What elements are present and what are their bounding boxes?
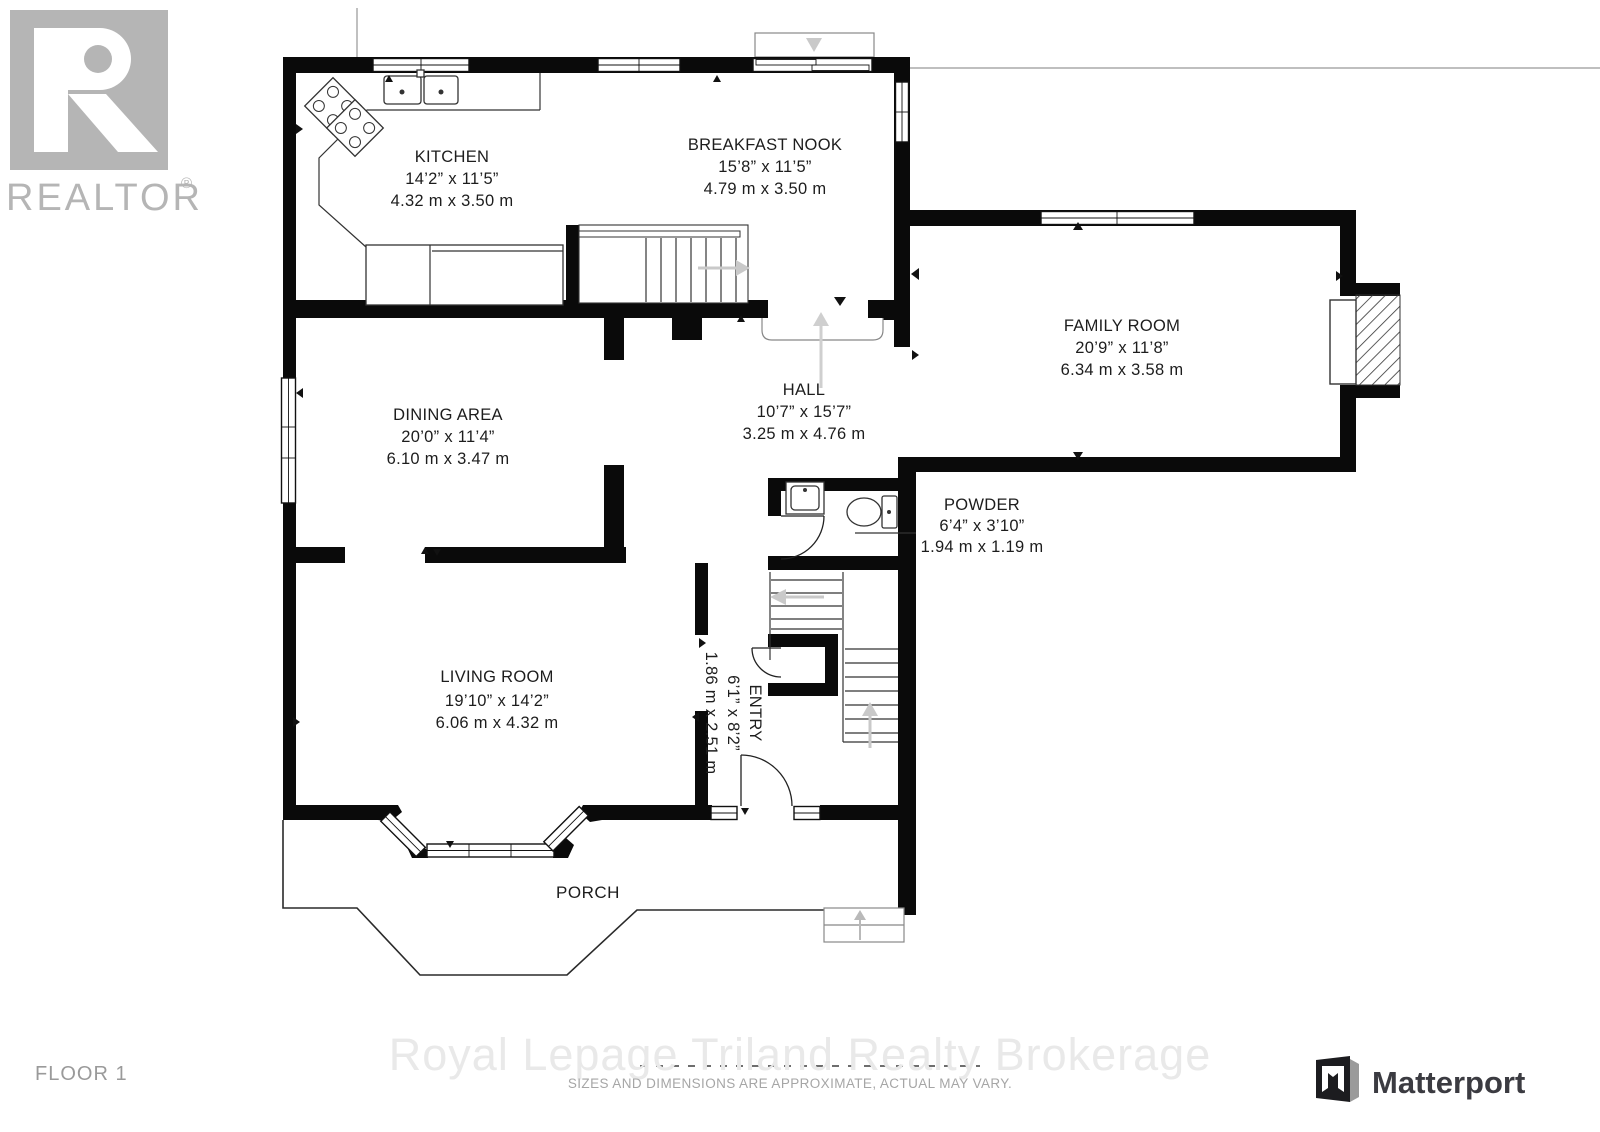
front-door: [741, 755, 792, 806]
nook-top-window: [598, 59, 680, 72]
floorplan-drawing: KITCHEN 14’2” x 11’5” 4.32 m x 3.50 m BR…: [0, 0, 1600, 1132]
room-name: FAMILY ROOM: [1064, 317, 1180, 335]
room-name: POWDER: [944, 496, 1020, 514]
room-label-breakfast-nook: BREAKFAST NOOK 15’8” x 11’5” 4.79 m x 3.…: [688, 136, 842, 198]
room-label-living-room: LIVING ROOM 19’10” x 14’2” 6.06 m x 4.32…: [436, 668, 559, 732]
room-name: BREAKFAST NOOK: [688, 136, 842, 154]
room-metric: 4.32 m x 3.50 m: [391, 192, 514, 210]
disclaimer-text: SIZES AND DIMENSIONS ARE APPROXIMATE, AC…: [568, 1076, 1012, 1091]
patio-landing: [755, 33, 874, 57]
room-metric: 6.06 m x 4.32 m: [436, 714, 559, 732]
floor-label: FLOOR 1: [35, 1063, 128, 1085]
room-label-porch: PORCH: [556, 883, 620, 902]
room-metric: 6.10 m x 3.47 m: [387, 450, 510, 468]
family-room-window: [1041, 212, 1194, 225]
firebox: [1330, 300, 1356, 384]
room-name: LIVING ROOM: [440, 668, 553, 686]
room-imperial: 10’7” x 15’7”: [757, 403, 852, 421]
stair-main: [843, 572, 898, 748]
room-metric: 3.25 m x 4.76 m: [743, 425, 866, 443]
patio-sliding-door: [753, 59, 872, 72]
room-metric: 6.34 m x 3.58 m: [1061, 361, 1184, 379]
room-label-entry: ENTRY 6’1” x 8’2” 1.86 m x 2.51 m: [702, 652, 764, 775]
kitchen-sink: [384, 70, 458, 104]
cooktop: [305, 78, 384, 157]
room-imperial: 14’2” x 11’5”: [405, 170, 498, 188]
stair-up-arrow-icon: [862, 702, 878, 716]
closet-door: [752, 648, 781, 677]
room-label-powder: POWDER 6’4” x 3’10” 1.94 m x 1.19 m: [921, 496, 1044, 556]
room-metric: 1.94 m x 1.19 m: [921, 538, 1044, 556]
matterport-mark-icon: [1316, 1056, 1359, 1102]
registered-mark: ®: [181, 175, 192, 192]
room-imperial: 15’8” x 11’5”: [718, 158, 811, 176]
room-imperial: 6’4” x 3’10”: [939, 517, 1024, 535]
room-metric: 4.79 m x 3.50 m: [704, 180, 827, 198]
room-imperial: 6’1” x 8’2”: [724, 675, 742, 751]
room-metric: 1.86 m x 2.51 m: [702, 652, 720, 775]
realtor-wordmark: REALTOR: [6, 177, 203, 219]
matterport-wordmark: Matterport: [1372, 1065, 1525, 1100]
powder-door: [781, 516, 824, 559]
floorplan-page: KITCHEN 14’2” x 11’5” 4.32 m x 3.50 m BR…: [0, 0, 1600, 1132]
room-label-hall: HALL 10’7” x 15’7” 3.25 m x 4.76 m: [743, 381, 866, 443]
watermark: Royal Lepage Triland Realty Brokerage SI…: [389, 1029, 1211, 1091]
fireplace: [1330, 295, 1400, 385]
room-name: KITCHEN: [415, 148, 490, 166]
brokerage-watermark: Royal Lepage Triland Realty Brokerage: [389, 1029, 1211, 1080]
room-imperial: 20’9” x 11’8”: [1075, 339, 1168, 357]
room-imperial: 20’0” x 11’4”: [401, 428, 494, 446]
room-name: DINING AREA: [393, 406, 503, 424]
dining-window: [282, 378, 296, 503]
room-name: ENTRY: [746, 684, 764, 741]
entry-sidelight-left: [711, 807, 737, 820]
powder-sink: [786, 482, 824, 514]
room-imperial: 19’10” x 14’2”: [445, 692, 549, 710]
stair-upper: [579, 225, 750, 303]
entry-sidelight-right: [794, 807, 820, 820]
realtor-logo: REALTOR ®: [6, 10, 203, 219]
porch-steps: [824, 908, 904, 942]
room-label-kitchen: KITCHEN 14’2” x 11’5” 4.32 m x 3.50 m: [391, 148, 514, 210]
nook-right-window: [896, 82, 909, 142]
room-label-dining-area: DINING AREA 20’0” x 11’4” 6.10 m x 3.47 …: [387, 406, 510, 468]
matterport-logo: Matterport: [1316, 1056, 1525, 1102]
room-name: HALL: [783, 381, 825, 399]
hall-step-landing: [762, 312, 883, 388]
toilet: [847, 496, 897, 528]
kitchen-island: [366, 245, 563, 305]
stair-down-arrow-icon: [770, 589, 786, 605]
room-label-family-room: FAMILY ROOM 20’9” x 11’8” 6.34 m x 3.58 …: [1061, 317, 1184, 379]
